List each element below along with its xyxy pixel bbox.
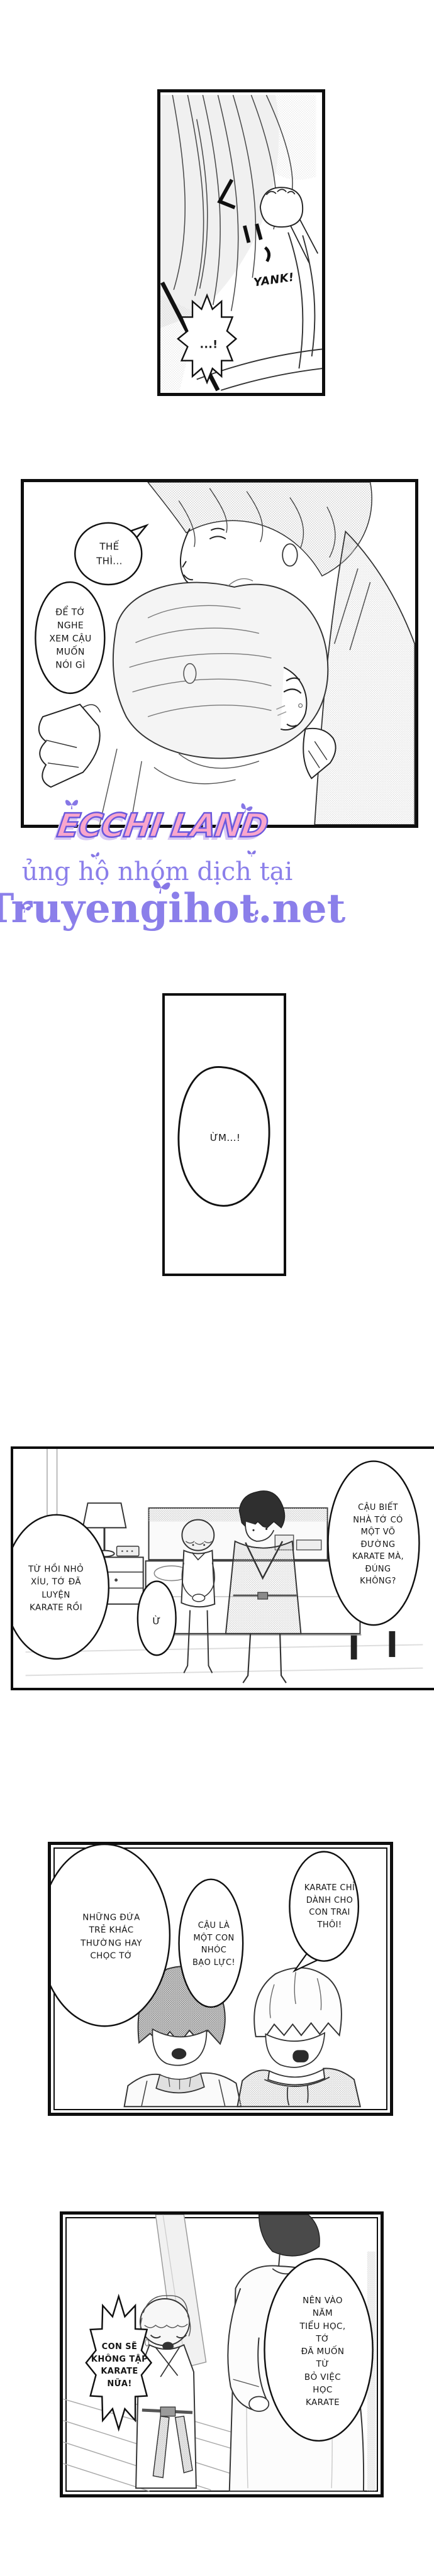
speech-bubble-text: THẾ THÌ... [96, 540, 123, 568]
panel-1-art [160, 92, 322, 393]
manga-page: YANK! ...! [0, 0, 434, 2576]
panel-4: CẬU BIẾT NHÀ TỚ CÓ MỘT VÕ ĐƯỜNG KARATE M… [11, 1446, 434, 1690]
butterfly-icon [149, 876, 172, 899]
speech-bubble-text: ỪM...! [210, 1131, 241, 1145]
panel-2: THẾ THÌ... ĐỂ TỚ NGHE XEM CẬU MUỐN NÓI G… [21, 479, 418, 828]
speech-bubble-text: ...! [200, 337, 218, 353]
speech-bubble-text: NHỮNG ĐỨA TRẺ KHÁC THƯỜNG HAY CHỌC TỚ [81, 1912, 142, 1962]
speech-bubble-text: Ừ [152, 1614, 160, 1629]
speech-bubble-text: KARATE CHỈ DÀNH CHO CON TRAI THÔI! [304, 1882, 355, 1931]
speech-bubble-text: CON SẼ KHÔNG TẬP KARATE NỮA! [91, 2341, 148, 2390]
speech-bubble-text: CẬU BIẾT NHÀ TỚ CÓ MỘT VÕ ĐƯỜNG KARATE M… [352, 1502, 404, 1588]
speech-bubble-text: NÊN VÀO NĂM TIỂU HỌC, TỚ ĐÃ MUỐN TỪ BỎ V… [294, 2294, 352, 2409]
butterfly-icon [64, 797, 79, 812]
speech-bubble-text: TỪ HỒI NHỎ XÍU, TỚ ĐÃ LUYỆN KARATE RỒI [28, 1563, 84, 1614]
butterfly-icon [247, 849, 257, 859]
panel-5: NHỮNG ĐỨA TRẺ KHÁC THƯỜNG HAY CHỌC TỚ CẬ… [48, 1842, 393, 2116]
panel-3: ỪM...! [162, 993, 286, 1276]
speech-bubble-text: ĐỂ TỚ NGHE XEM CẬU MUỐN NÓI GÌ [49, 607, 91, 673]
watermark-site: Truyengihot.net [0, 885, 345, 932]
panel-6: CON SẼ KHÔNG TẬP KARATE NỮA! NÊN VÀO NĂM… [60, 2211, 384, 2497]
panel-1: YANK! ...! [157, 89, 325, 396]
speech-bubble-text: CẬU LÀ MỘT CON NHÓC BẠO LỰC! [192, 1920, 235, 1969]
